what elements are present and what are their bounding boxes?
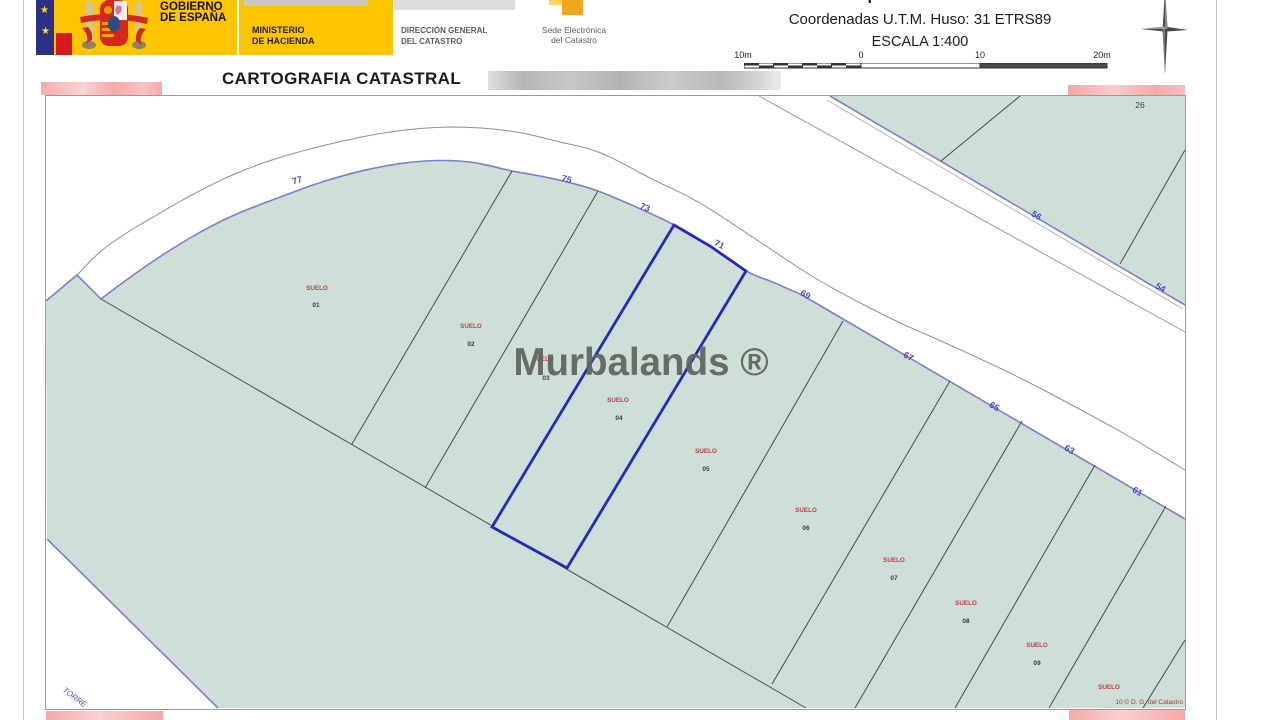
svg-text:10 © D. G. del Catastro: 10 © D. G. del Catastro bbox=[1115, 698, 1183, 706]
svg-text:SUELO: SUELO bbox=[460, 323, 482, 330]
svg-text:01: 01 bbox=[312, 302, 320, 309]
svg-text:Murbalands ®: Murbalands ® bbox=[513, 341, 768, 384]
svg-text:SUELO: SUELO bbox=[795, 507, 817, 514]
svg-text:07: 07 bbox=[890, 575, 898, 582]
svg-text:06: 06 bbox=[802, 525, 810, 532]
svg-text:SUELO: SUELO bbox=[306, 285, 328, 292]
svg-text:04: 04 bbox=[615, 415, 623, 422]
svg-text:TORRE: TORRE bbox=[61, 685, 89, 709]
svg-text:SUELO: SUELO bbox=[1098, 684, 1120, 691]
svg-text:SUELO: SUELO bbox=[607, 397, 629, 404]
svg-text:05: 05 bbox=[702, 466, 710, 473]
svg-text:02: 02 bbox=[467, 341, 475, 348]
svg-text:SUELO: SUELO bbox=[695, 448, 717, 455]
svg-text:SUELO: SUELO bbox=[883, 557, 905, 564]
svg-text:SUELO: SUELO bbox=[1026, 642, 1048, 649]
svg-text:26: 26 bbox=[1135, 100, 1145, 110]
svg-text:77: 77 bbox=[291, 174, 304, 186]
svg-text:08: 08 bbox=[962, 618, 970, 625]
svg-text:SUELO: SUELO bbox=[955, 600, 977, 607]
svg-text:09: 09 bbox=[1033, 660, 1041, 667]
